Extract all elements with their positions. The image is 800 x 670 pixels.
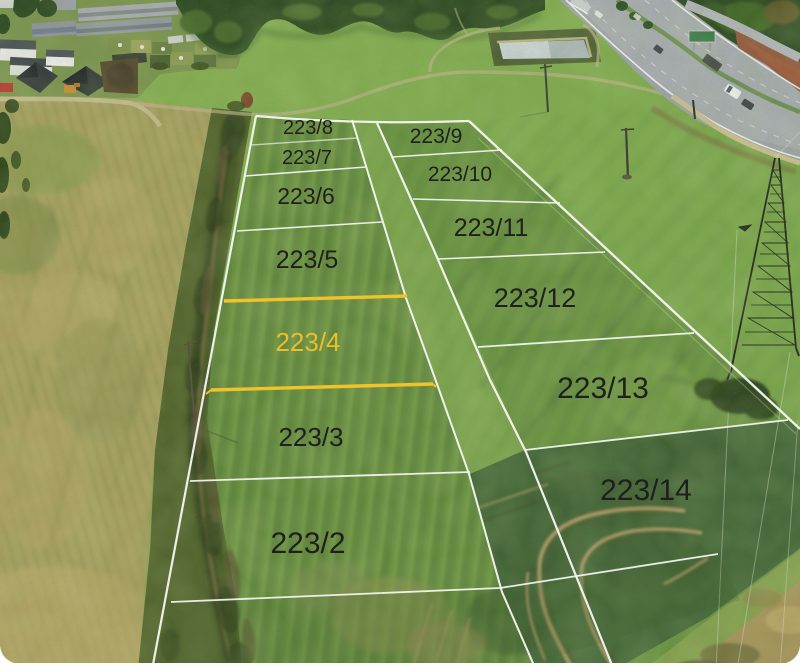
svg-text:223/5: 223/5 xyxy=(276,246,339,274)
svg-text:223/4: 223/4 xyxy=(275,327,340,357)
svg-text:223/6: 223/6 xyxy=(277,183,335,209)
svg-text:223/8: 223/8 xyxy=(283,117,333,139)
svg-text:223/13: 223/13 xyxy=(557,372,649,405)
svg-text:223/9: 223/9 xyxy=(410,125,463,148)
svg-text:223/14: 223/14 xyxy=(600,474,692,507)
svg-text:223/7: 223/7 xyxy=(282,147,332,169)
svg-text:223/3: 223/3 xyxy=(278,422,343,452)
svg-text:223/11: 223/11 xyxy=(454,214,529,242)
svg-text:223/2: 223/2 xyxy=(270,527,345,560)
svg-text:223/10: 223/10 xyxy=(428,163,492,186)
svg-text:223/12: 223/12 xyxy=(494,283,577,313)
